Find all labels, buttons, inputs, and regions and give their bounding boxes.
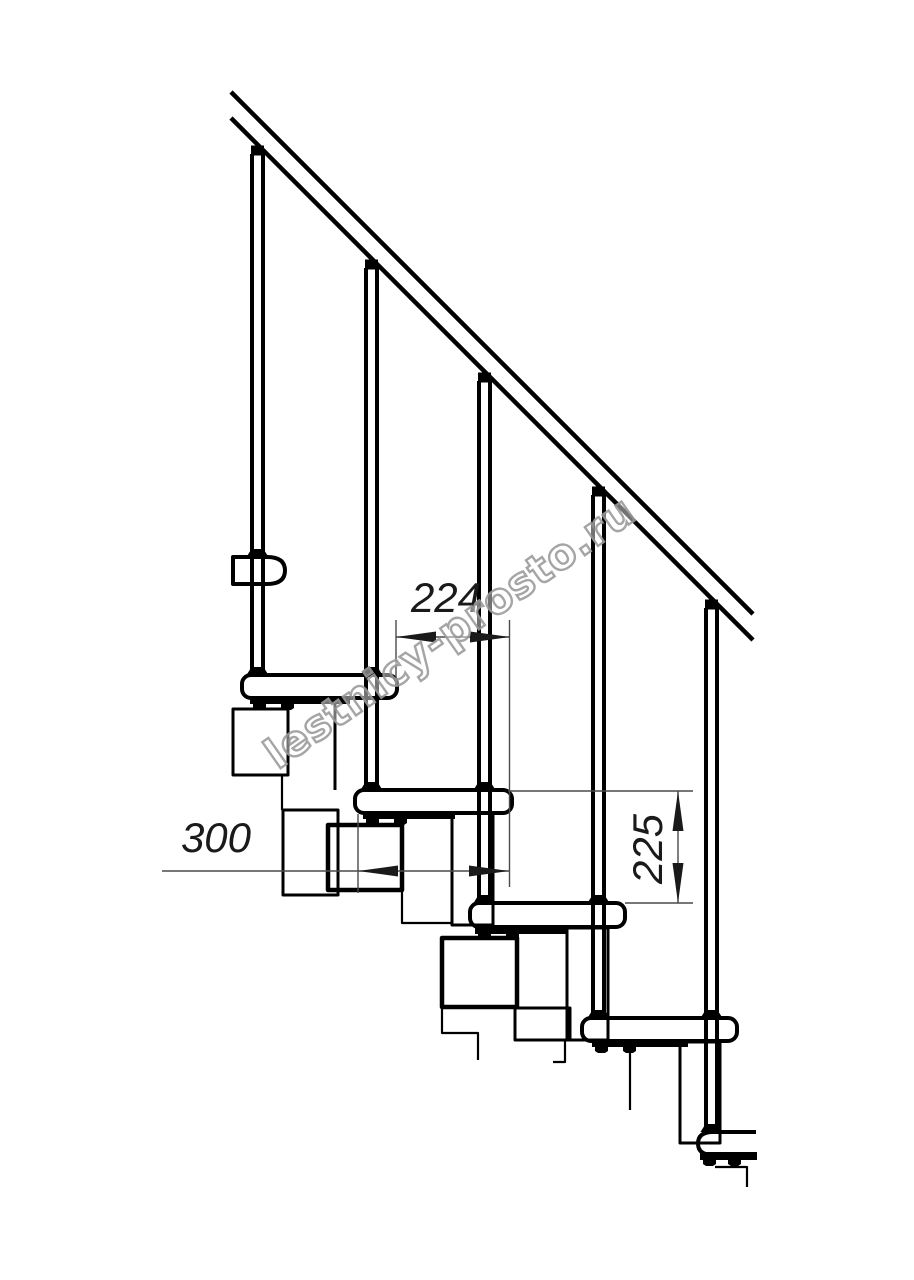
module-riser bbox=[567, 928, 608, 1040]
bolt-nub bbox=[728, 1160, 741, 1166]
module-box bbox=[442, 938, 517, 1007]
staircase-drawing: 224 300 225 lestnicy-prosto.ru bbox=[0, 0, 914, 1280]
bolt-nub bbox=[595, 1047, 608, 1053]
module-chain-2 bbox=[402, 813, 517, 1060]
landing-edge bbox=[233, 557, 285, 584]
tread-4 bbox=[582, 1018, 737, 1041]
dimension-label-tread-length: 300 bbox=[181, 814, 252, 861]
baluster-1 bbox=[247, 146, 269, 676]
dimension-label-rise: 225 bbox=[624, 813, 671, 885]
module-box bbox=[515, 1008, 570, 1040]
module-step-line bbox=[715, 1167, 747, 1187]
bolt-nub bbox=[703, 1160, 716, 1166]
arrowhead-left bbox=[358, 866, 398, 877]
drawing-canvas: 224 300 225 lestnicy-prosto.ru bbox=[0, 0, 914, 1280]
module-step-line bbox=[402, 890, 452, 923]
module-step-line bbox=[442, 1007, 478, 1060]
dimension-rise-225: 225 bbox=[508, 791, 693, 903]
watermark-text: lestnicy-prosto.ru bbox=[255, 486, 644, 779]
arrowhead-down bbox=[673, 863, 684, 903]
tread-4-bracket bbox=[592, 1040, 688, 1053]
baluster-4 bbox=[588, 487, 610, 1019]
tread-5-bracket bbox=[700, 1152, 757, 1166]
module-step-line bbox=[553, 1040, 565, 1062]
arrowhead-up bbox=[673, 791, 684, 831]
